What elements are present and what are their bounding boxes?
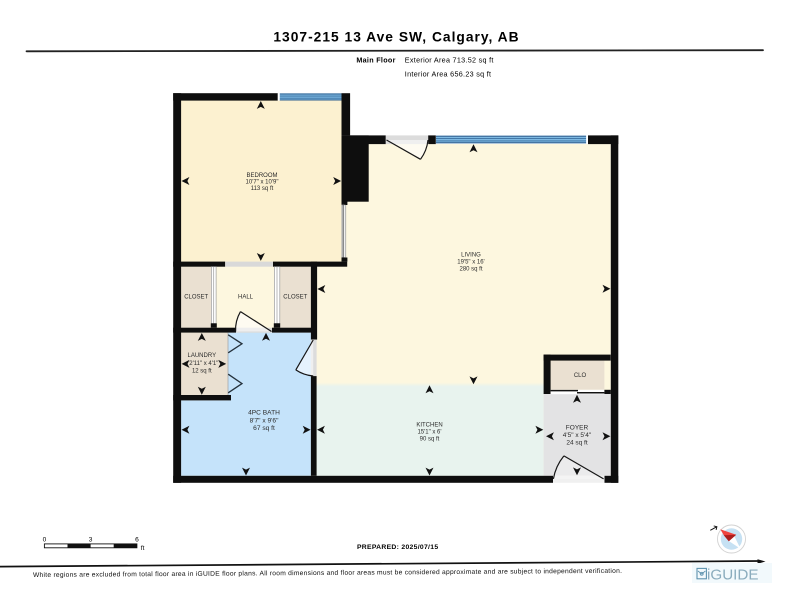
svg-text:6: 6 — [135, 537, 139, 544]
svg-text:PREPARED: 2025/07/15: PREPARED: 2025/07/15 — [357, 544, 438, 551]
svg-text:2'11" x 4'1": 2'11" x 4'1" — [189, 361, 218, 367]
svg-text:10'7" x 10'9": 10'7" x 10'9" — [246, 179, 279, 185]
svg-text:Main Floor: Main Floor — [356, 56, 395, 65]
svg-text:24 sq ft: 24 sq ft — [566, 439, 588, 446]
svg-text:113 sq ft: 113 sq ft — [251, 186, 274, 192]
svg-text:90 sq ft: 90 sq ft — [420, 437, 440, 443]
svg-text:Exterior Area 713.52 sq ft: Exterior Area 713.52 sq ft — [405, 56, 494, 65]
svg-text:67 sq ft: 67 sq ft — [253, 425, 275, 432]
svg-text:ft: ft — [141, 545, 145, 552]
svg-text:White regions are excluded fro: White regions are excluded from total fl… — [33, 568, 622, 579]
svg-text:Interior Area 656.23 sq ft: Interior Area 656.23 sq ft — [405, 69, 492, 78]
svg-text:BEDROOM: BEDROOM — [246, 173, 277, 179]
svg-text:0: 0 — [43, 537, 47, 544]
svg-text:CLOSET: CLOSET — [184, 295, 208, 301]
svg-text:1307-215 13 Ave SW, Calgary, A: 1307-215 13 Ave SW, Calgary, AB — [273, 29, 519, 44]
svg-text:LIVING: LIVING — [461, 253, 481, 259]
svg-text:3: 3 — [89, 537, 93, 544]
svg-text:15'1" x 6': 15'1" x 6' — [417, 430, 441, 436]
svg-text:FOYER: FOYER — [566, 424, 589, 431]
svg-text:19'5" x 16': 19'5" x 16' — [457, 260, 484, 266]
svg-text:CLOSET: CLOSET — [283, 295, 307, 301]
svg-text:12 sq ft: 12 sq ft — [192, 369, 212, 375]
svg-text:CLO: CLO — [574, 373, 587, 379]
svg-text:HALL: HALL — [238, 295, 254, 301]
svg-text:8'7" x 9'6": 8'7" x 9'6" — [250, 417, 279, 424]
svg-text:KITCHEN: KITCHEN — [416, 423, 442, 429]
svg-text:4PC BATH: 4PC BATH — [248, 409, 280, 416]
svg-text:280 sq ft: 280 sq ft — [459, 267, 482, 273]
svg-text:LAUNDRY: LAUNDRY — [188, 353, 217, 359]
svg-text:iGUIDE: iGUIDE — [707, 567, 758, 584]
svg-text:4'5" x 5'4": 4'5" x 5'4" — [563, 432, 592, 439]
